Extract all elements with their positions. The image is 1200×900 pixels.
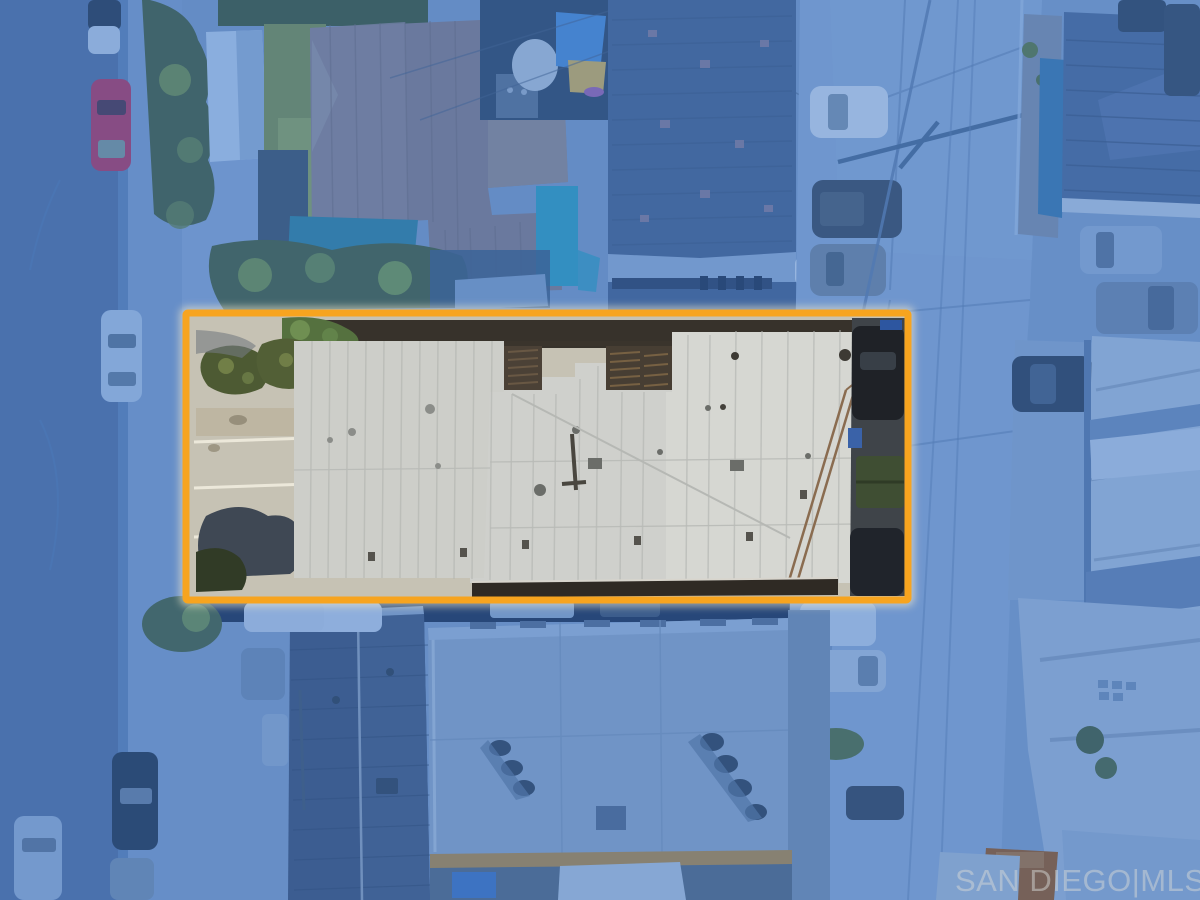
svg-text:SAN DIEGO|MLS: SAN DIEGO|MLS (955, 863, 1200, 898)
